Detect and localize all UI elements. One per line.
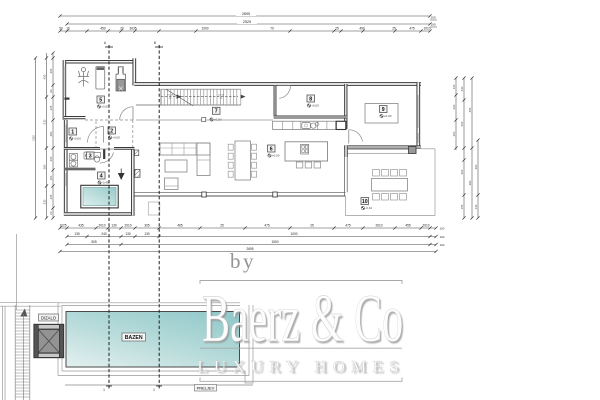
svg-text:130: 130	[125, 232, 131, 236]
svg-text:490: 490	[359, 27, 365, 31]
svg-text:+0,00: +0,00	[384, 114, 392, 118]
svg-text:25: 25	[220, 224, 224, 228]
svg-text:90: 90	[49, 89, 53, 93]
svg-text:3035: 3035	[129, 27, 136, 31]
svg-text:1025: 1025	[59, 224, 66, 228]
svg-text:LUXURY HOMES: LUXURY HOMES	[197, 357, 404, 376]
svg-text:1500: 1500	[271, 240, 278, 244]
svg-text:330: 330	[43, 199, 47, 204]
svg-text:435: 435	[78, 224, 84, 228]
svg-text:135: 135	[74, 232, 80, 236]
svg-text:490: 490	[468, 180, 472, 185]
svg-text:10: 10	[362, 199, 368, 205]
svg-text:-0,10: -0,10	[365, 206, 372, 210]
svg-text:1: 1	[153, 388, 155, 392]
svg-text:300: 300	[474, 164, 478, 169]
svg-text:by: by	[230, 249, 256, 273]
svg-text:8: 8	[309, 96, 312, 102]
svg-text:450: 450	[100, 27, 106, 31]
svg-text:+0,00: +0,00	[272, 154, 280, 158]
svg-text:160: 160	[49, 175, 53, 180]
svg-text:230: 230	[460, 86, 464, 91]
svg-text:130: 130	[111, 224, 117, 228]
svg-text:475: 475	[409, 27, 415, 31]
svg-text:17x18: 17x18	[218, 94, 225, 96]
svg-text:240: 240	[101, 232, 107, 236]
svg-text:+0,00: +0,00	[214, 118, 222, 122]
svg-text:B: B	[154, 41, 156, 45]
svg-text:2010: 2010	[124, 224, 131, 228]
svg-text:475: 475	[264, 224, 270, 228]
svg-text:2525: 2525	[243, 20, 251, 24]
svg-text:305: 305	[144, 224, 150, 228]
svg-text:+0,00: +0,00	[311, 104, 319, 108]
svg-text:25: 25	[392, 27, 396, 31]
svg-text:130: 130	[144, 232, 150, 236]
svg-text:120: 120	[452, 84, 456, 89]
svg-text:2010: 2010	[98, 224, 105, 228]
svg-text:25: 25	[310, 224, 314, 228]
svg-text:7: 7	[215, 109, 218, 115]
svg-text:455: 455	[468, 107, 472, 112]
svg-text:300: 300	[460, 169, 464, 174]
svg-text:70: 70	[270, 27, 274, 31]
svg-text:100: 100	[440, 243, 445, 247]
svg-text:320: 320	[452, 104, 456, 109]
svg-text:+0,00: +0,00	[101, 105, 109, 109]
svg-text:305: 305	[49, 68, 53, 73]
svg-text:1: 1	[71, 129, 74, 135]
svg-text:100: 100	[440, 227, 445, 231]
svg-text:100: 100	[430, 16, 435, 20]
svg-text:100: 100	[440, 235, 445, 239]
svg-text:1000: 1000	[201, 27, 208, 31]
svg-text:2695: 2695	[242, 12, 250, 16]
svg-text:4: 4	[100, 173, 103, 179]
svg-text:-0,45: -0,45	[102, 181, 109, 185]
svg-text:510: 510	[43, 119, 47, 124]
svg-text:430: 430	[43, 74, 47, 79]
svg-text:1010: 1010	[423, 27, 430, 31]
svg-text:6: 6	[270, 146, 273, 152]
svg-text:9: 9	[382, 107, 385, 113]
svg-text:225: 225	[49, 105, 53, 110]
svg-text:10: 10	[66, 27, 70, 31]
svg-text:520: 520	[460, 121, 464, 126]
svg-text:5: 5	[99, 97, 102, 103]
svg-text:DIZALO: DIZALO	[41, 315, 57, 320]
svg-text:225: 225	[49, 194, 53, 199]
svg-text:BAZEN: BAZEN	[125, 335, 143, 341]
svg-text:1: 1	[103, 388, 105, 392]
svg-text:1110: 1110	[32, 135, 36, 141]
svg-text:20: 20	[120, 27, 124, 31]
svg-text:3: 3	[89, 153, 92, 159]
svg-text:130: 130	[474, 204, 478, 209]
svg-text:100: 100	[430, 23, 435, 27]
svg-text:2010: 2010	[375, 224, 382, 228]
svg-text:2: 2	[110, 128, 113, 134]
svg-text:60: 60	[49, 211, 53, 215]
svg-text:Baerz & Co: Baerz & Co	[202, 282, 403, 357]
svg-text:300: 300	[452, 131, 456, 136]
svg-text:+0,00: +0,00	[73, 137, 81, 141]
svg-text:475: 475	[345, 224, 351, 228]
svg-text:PRELJEV: PRELJEV	[197, 386, 215, 391]
svg-text:220: 220	[49, 156, 53, 161]
svg-text:2010: 2010	[422, 224, 429, 228]
svg-text:1000: 1000	[290, 232, 297, 236]
svg-text:465: 465	[177, 224, 183, 228]
svg-text:280: 280	[49, 131, 53, 136]
svg-text:25: 25	[335, 27, 339, 31]
svg-text:17x18: 17x18	[167, 94, 174, 96]
svg-text:380: 380	[43, 164, 47, 169]
svg-text:505: 505	[91, 240, 97, 244]
svg-text:50: 50	[59, 27, 63, 31]
svg-text:+0,00: +0,00	[112, 136, 120, 140]
svg-text:455: 455	[405, 224, 411, 228]
svg-text:155: 155	[460, 204, 464, 209]
